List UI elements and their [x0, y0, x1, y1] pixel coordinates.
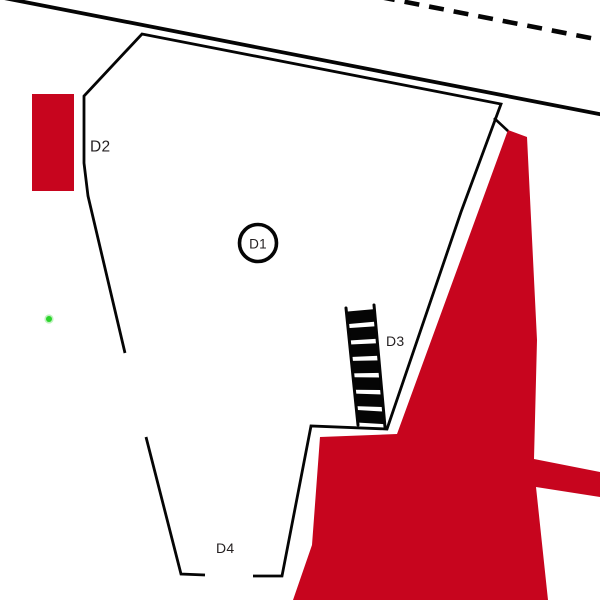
boundary-dashed-line	[380, 0, 600, 41]
label-d3: D3	[386, 333, 405, 349]
staircase-rung	[355, 400, 382, 401]
staircase-rung	[350, 350, 378, 351]
survey-point-green	[46, 316, 52, 322]
staircase-rung	[347, 315, 375, 318]
label-d4: D4	[216, 540, 235, 556]
staircase-d3	[346, 305, 385, 427]
label-d2: D2	[90, 139, 110, 156]
outline-connector-segment	[494, 118, 508, 131]
site-plan: D1 D2 D3 D4	[0, 0, 600, 600]
staircase-rung	[352, 367, 380, 368]
road-line	[4, 0, 600, 115]
site-plan-canvas: D1 D2 D3 D4	[0, 0, 600, 600]
red-structure-west	[32, 94, 74, 191]
staircase-rung	[349, 333, 377, 335]
red-structure-east	[293, 130, 600, 600]
label-d1: D1	[249, 237, 267, 252]
excavation-outline-lower-left	[146, 437, 205, 575]
staircase-rung	[357, 416, 384, 418]
